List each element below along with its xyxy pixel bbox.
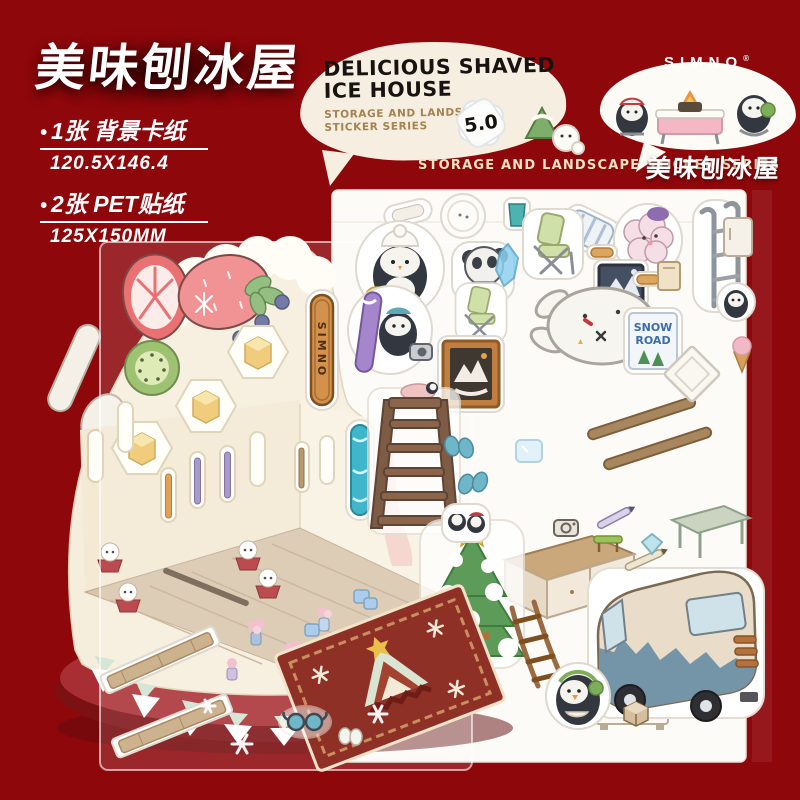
spec-label: 2张 PET贴纸 [51, 185, 184, 219]
camp-table [656, 90, 724, 144]
sticker-box [624, 702, 648, 726]
sticker-small-frame [658, 262, 680, 290]
bullet-icon: • [40, 122, 47, 145]
earmuff [761, 103, 775, 117]
spec-list: • 1张 背景卡纸 120.5X146.4 • 2张 PET贴纸 125X150… [40, 110, 208, 256]
penguins-campfire-illustration [606, 72, 790, 148]
page-title: 美味刨冰屋 [32, 28, 305, 100]
bullet-icon: • [40, 195, 47, 218]
brand-logo: SIMNO® [664, 54, 749, 71]
beret [647, 207, 669, 221]
spec-item-card: • 1张 背景卡纸 [40, 110, 208, 150]
sticker-penguin-snowboard [348, 286, 432, 374]
svg-text:SIMNO: SIMNO [315, 322, 328, 379]
penguin-right [737, 95, 775, 135]
sticker-camp-chair [523, 209, 583, 279]
product-poster: SNOW ROAD SIMNO [0, 0, 800, 800]
bubble-tail-left [316, 150, 356, 190]
sticker-mini-fridge [724, 218, 752, 256]
sticker-penguin-small [717, 283, 755, 321]
svg-text:ROAD: ROAD [635, 334, 670, 347]
spec-size: 125X150MM [50, 226, 208, 248]
svg-text:SNOW: SNOW [634, 321, 673, 334]
sticker-penguin-headphones [546, 663, 610, 729]
van-grill [734, 636, 758, 667]
bubble-title-line2: ICE HOUSE [324, 76, 566, 102]
brand-name: SIMNO [664, 54, 743, 71]
series-title-cn: 美味刨冰屋 [645, 149, 783, 185]
version-badge: 5.0 [452, 94, 510, 152]
penguin-left [616, 99, 648, 136]
sticker-goggles [279, 706, 331, 738]
registered-mark: ® [743, 54, 749, 63]
camera-bot [410, 344, 432, 360]
sticker-penguin-pair [442, 504, 490, 542]
sticker-camper-van [588, 568, 764, 721]
tree-snowman-illustration [524, 104, 588, 160]
svg-text:5.0: 5.0 [463, 111, 499, 137]
spec-label: 1张 背景卡纸 [51, 112, 185, 146]
sticker-plate [441, 194, 485, 238]
sticker-wood-sign: SIMNO [306, 290, 338, 410]
license-plate [740, 692, 758, 702]
sticker-camera [554, 520, 578, 536]
sticker-camp-chair-2 [456, 283, 507, 343]
spec-item-pet: • 2张 PET贴纸 [40, 183, 208, 223]
spec-size: 120.5X146.4 [50, 153, 208, 175]
sticker-ice-block [516, 440, 542, 462]
